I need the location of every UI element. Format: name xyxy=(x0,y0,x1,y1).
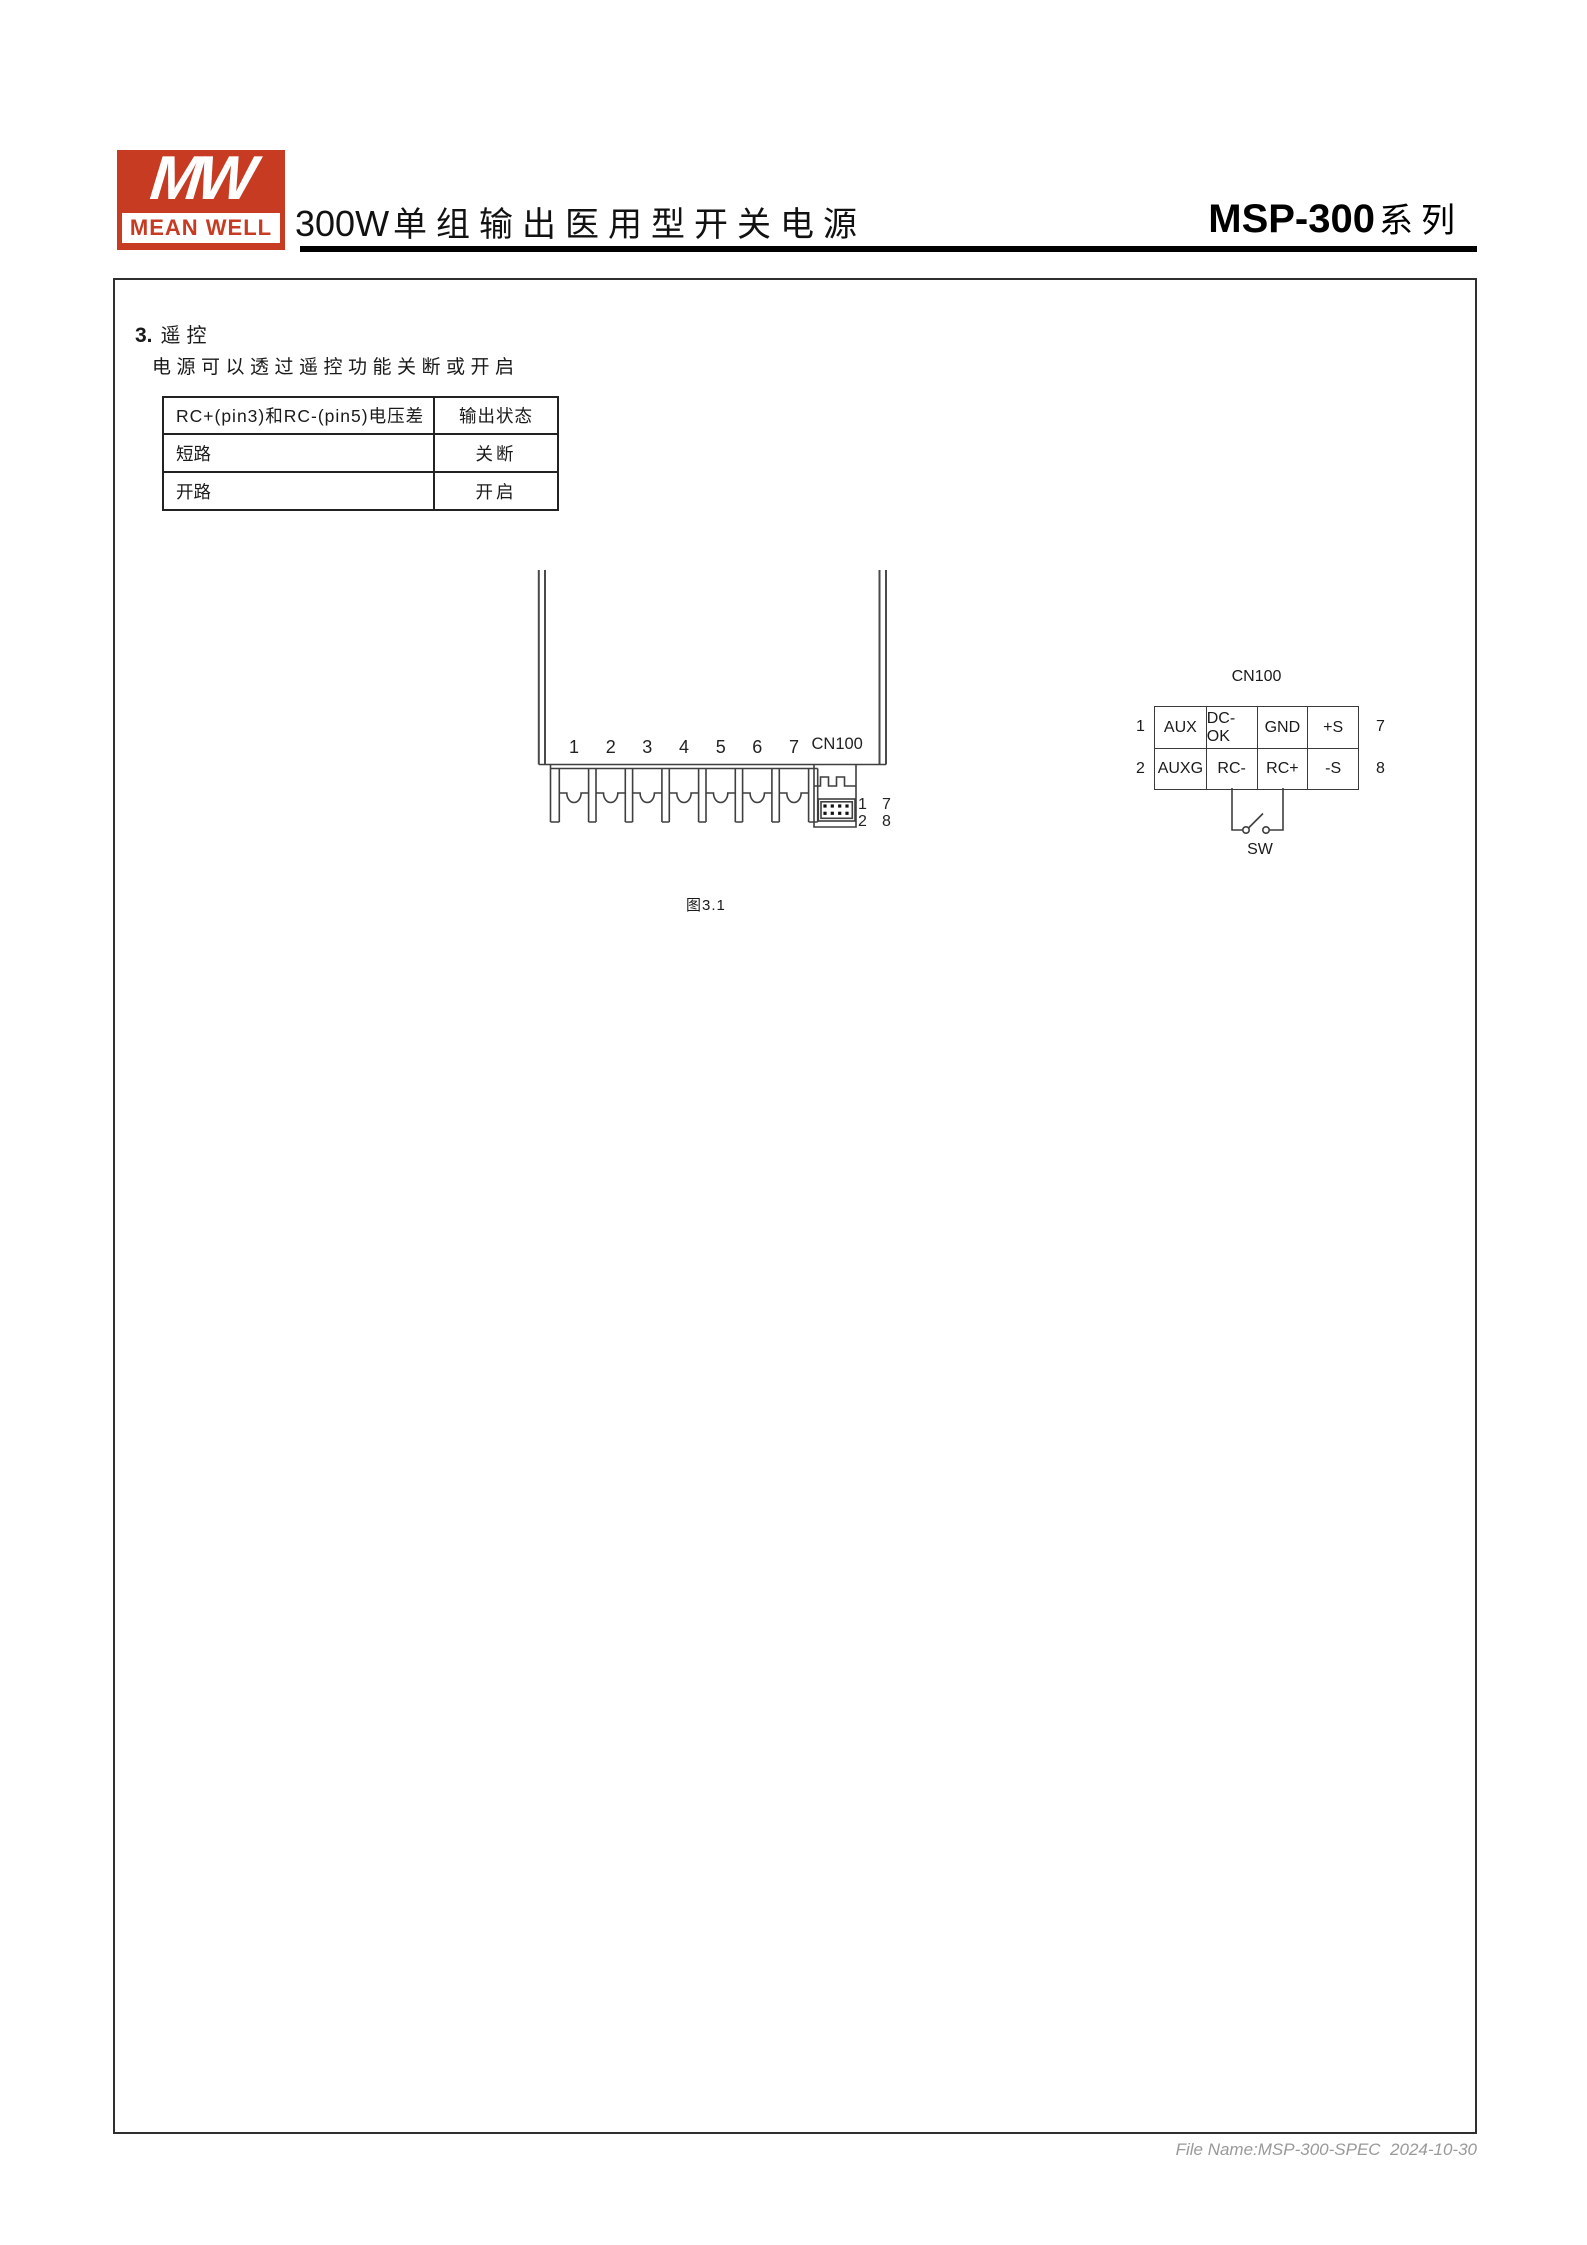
title-text: 单组输出医用型开关电源 xyxy=(393,206,866,244)
terminal-number: 6 xyxy=(752,737,762,757)
pin-label: 1 xyxy=(858,796,867,813)
mean-well-logo: MW MEAN WELL xyxy=(117,150,285,250)
terminal-numbers: 1 2 3 4 5 6 7 xyxy=(569,737,799,757)
table-row: 开路 xyxy=(164,471,433,509)
cn100-pin-number-left-2: 2 xyxy=(1128,748,1153,790)
cn100-cell: +S xyxy=(1307,707,1358,748)
figure-caption: 图3.1 xyxy=(686,894,726,915)
terminal-number: 4 xyxy=(679,737,689,757)
pin-label: 2 xyxy=(858,813,867,830)
switch-label: SW xyxy=(1215,841,1305,859)
section-title: 遥控 xyxy=(161,325,213,347)
table-row: 关断 xyxy=(433,433,557,471)
datasheet-page: MW MEAN WELL 300W单组输出医用型开关电源 MSP-300 系列 … xyxy=(0,0,1587,2245)
cn100-pin-table: AUX DC-OK GND +S AUXG RC- RC+ -S xyxy=(1154,706,1359,790)
cn100-cell: RC- xyxy=(1206,748,1257,789)
pin-label: 7 xyxy=(882,796,891,813)
rc-table-header-output: 输出状态 xyxy=(433,398,557,433)
cn100-cell: -S xyxy=(1307,748,1358,789)
terminal-number: 1 xyxy=(569,737,579,757)
logo-brand-band: MEAN WELL xyxy=(122,213,280,243)
pin-header-labels: 1 7 2 8 xyxy=(858,796,891,830)
header-divider xyxy=(300,246,1477,252)
page-title: 300W单组输出医用型开关电源 xyxy=(295,197,866,246)
psu-rear-view-diagram: 1 2 3 4 5 6 7 CN100 1 7 2 8 xyxy=(520,560,920,840)
brand-name: MEAN WELL xyxy=(130,213,272,243)
remote-switch-wiring xyxy=(1215,788,1305,840)
title-wattage: 300W xyxy=(295,203,389,244)
cn100-pin-number-right-8: 8 xyxy=(1368,748,1393,790)
series-model: MSP-300 xyxy=(1208,197,1375,242)
terminal-number: 2 xyxy=(606,737,616,757)
terminal-number: 3 xyxy=(642,737,652,757)
cn100-cell: AUX xyxy=(1155,707,1206,748)
table-row: 短路 xyxy=(164,433,433,471)
pin-header-dots xyxy=(823,804,848,815)
series-title: MSP-300 系列 xyxy=(1208,193,1463,242)
terminal-number: 5 xyxy=(716,737,726,757)
section-description: 电源可以透过遥控功能关断或开启 xyxy=(152,352,520,379)
cn100-cell: GND xyxy=(1257,707,1308,748)
cn100-connector-label: CN100 xyxy=(812,735,863,753)
section-heading: 3.遥控 xyxy=(135,319,213,348)
content-border xyxy=(113,278,1477,2134)
pin-label: 8 xyxy=(882,813,891,830)
section-number: 3. xyxy=(135,324,153,347)
cn100-cell: DC-OK xyxy=(1206,707,1257,748)
cn100-table-title: CN100 xyxy=(1154,668,1359,686)
terminal-number: 7 xyxy=(789,737,799,757)
rc-table-header-condition: RC+(pin3)和RC-(pin5)电压差 xyxy=(164,398,433,433)
switch-lever-icon xyxy=(1249,814,1264,829)
cn100-pin-number-left-1: 1 xyxy=(1128,706,1153,748)
mw-logo-icon: MW xyxy=(114,146,289,212)
cn100-pin-number-right-7: 7 xyxy=(1368,706,1393,748)
series-suffix: 系列 xyxy=(1379,193,1463,242)
table-row: 开启 xyxy=(433,471,557,509)
cn100-cell: RC+ xyxy=(1257,748,1308,789)
cn100-cell: AUXG xyxy=(1155,748,1206,789)
remote-control-table: RC+(pin3)和RC-(pin5)电压差 输出状态 短路 关断 开路 开启 xyxy=(162,396,559,511)
footer-file-info: File Name:MSP-300-SPEC 2024-10-30 xyxy=(1176,2140,1477,2160)
